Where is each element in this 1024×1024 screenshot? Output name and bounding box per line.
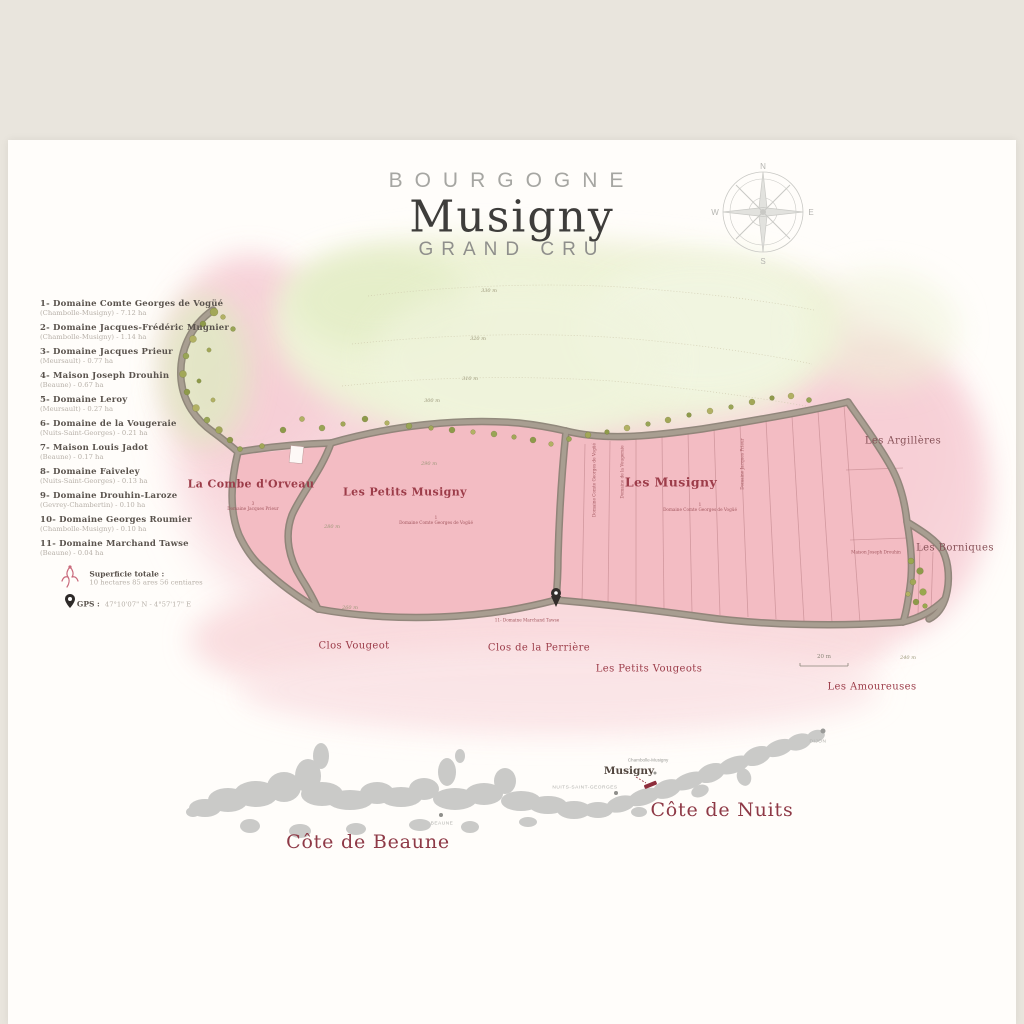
domaine-label: 6- Domaine de la Vougeraie: [40, 419, 240, 429]
label-clos-vougeot: Clos Vougeot: [318, 641, 389, 652]
vine-icon: [59, 564, 81, 590]
domaine-label: 7- Maison Louis Jadot: [40, 443, 240, 453]
domaine-label: 2- Domaine Jacques-Frédéric Mugnier: [40, 323, 240, 333]
region-title: BOURGOGNE: [389, 169, 636, 193]
parcel-owner-label: 1 Domaine Comte Georges de Vogüé: [399, 515, 473, 526]
nuits-dot: [614, 791, 618, 795]
label-les-petits-musigny: Les Petits Musigny: [343, 486, 467, 499]
domaine-legend: 1- Domaine Comte Georges de Vogüé(Chambo…: [40, 299, 240, 563]
domaine-label: 8- Domaine Faiveley: [40, 467, 240, 477]
compass-e: E: [808, 208, 813, 217]
label-dijon: DIJON: [810, 740, 827, 745]
parcel-owner-name: Domaine Jacques Prieur: [227, 506, 278, 511]
parcel-owner-label: 3 Domaine Jacques Prieur: [227, 501, 278, 512]
label-clos-de-la-perriere: Clos de la Perrière: [488, 643, 590, 654]
elevation-label: 260 m: [342, 605, 358, 611]
compass-n: N: [760, 162, 766, 171]
building: [289, 445, 304, 463]
beaune-dot: [439, 813, 443, 817]
legend-item: 11- Domaine Marchand Tawse(Beaune) - 0.0…: [40, 539, 240, 557]
domaine-label: 9- Domaine Drouhin-Laroze: [40, 491, 240, 501]
legend-item: 1- Domaine Comte Georges de Vogüé(Chambo…: [40, 299, 240, 317]
elevation-label: 320 m: [470, 336, 486, 342]
label-chambolle-musigny: Chambolle-Musigny: [628, 758, 669, 763]
parcel-owner-label: Domaine de la Vougeraie: [619, 445, 624, 498]
legend-item: 4- Maison Joseph Drouhin(Beaune) - 0.67 …: [40, 371, 240, 389]
domaine-detail: (Beaune) - 0.67 ha: [40, 381, 240, 389]
legend-item: 7- Maison Louis Jadot(Beaune) - 0.17 ha: [40, 443, 240, 461]
dijon-dot: [821, 729, 826, 734]
domaine-detail: (Beaune) - 0.04 ha: [40, 549, 240, 557]
elevation-label: 280 m: [324, 524, 340, 530]
page-title: Musigny: [409, 192, 614, 243]
domaine-label: 3- Domaine Jacques Prieur: [40, 347, 240, 357]
gps-value: 47°10'07" N - 4°57'17" E: [105, 601, 191, 609]
label-nuits-saint-georges: NUITS-SAINT-GEORGES: [552, 786, 617, 791]
superficie-label: Superficie totale :: [89, 570, 202, 579]
domaine-detail: (Chambolle-Musigny) - 1.14 ha: [40, 333, 240, 341]
label-la-combe-dorveau: La Combe d'Orveau: [188, 478, 315, 491]
label-les-borniques: Les Borniques: [916, 543, 994, 554]
label-beaune: BEAUNE: [431, 822, 454, 827]
parcel-owner-label: Maison Joseph Drouhin: [851, 549, 901, 554]
domaine-detail: (Beaune) - 0.17 ha: [40, 453, 240, 461]
gps-block: GPS : 47°10'07" N - 4°57'17" E: [77, 592, 191, 611]
parcel-owner-label: 11- Domaine Marchand Tawse: [495, 617, 559, 622]
elevation-label: 300 m: [424, 398, 440, 404]
domaine-label: 5- Domaine Leroy: [40, 395, 240, 405]
subtitle: GRAND CRU: [418, 239, 605, 261]
elevation-label: 290 m: [421, 461, 437, 467]
parcel-owner-name: Domaine Comte Georges de Vogüé: [399, 520, 473, 525]
elevation-label: 330 m: [481, 288, 497, 294]
gps-pin-icon: [64, 593, 76, 609]
scale-label: 20 m: [817, 654, 831, 660]
legend-item: 10- Domaine Georges Roumier(Chambolle-Mu…: [40, 515, 240, 533]
label-les-argilleres: Les Argillères: [865, 436, 941, 447]
domaine-label: 11- Domaine Marchand Tawse: [40, 539, 240, 549]
compass-rose-icon: N E S W: [711, 162, 813, 266]
legend-item: 6- Domaine de la Vougeraie(Nuits-Saint-G…: [40, 419, 240, 437]
domaine-label: 10- Domaine Georges Roumier: [40, 515, 240, 525]
parcel-owner-label: 1 Domaine Comte Georges de Vogüé: [663, 502, 737, 513]
legend-item: 2- Domaine Jacques-Frédéric Mugnier(Cham…: [40, 323, 240, 341]
legend-item: 3- Domaine Jacques Prieur(Meursault) - 0…: [40, 347, 240, 365]
domaine-detail: (Meursault) - 0.77 ha: [40, 357, 240, 365]
parcel-owner-label: Domaine Comte Georges de Vogüé: [591, 443, 596, 517]
elevation-label: 310 m: [462, 376, 478, 382]
elevation-label: 240 m: [900, 655, 916, 661]
label-cote-de-nuits: Côte de Nuits: [650, 799, 793, 821]
domaine-detail: (Meursault) - 0.27 ha: [40, 405, 240, 413]
gps-label: GPS :: [77, 600, 100, 609]
legend-item: 9- Domaine Drouhin-Laroze(Gevrey-Chamber…: [40, 491, 240, 509]
label-cote-de-beaune: Côte de Beaune: [286, 831, 450, 853]
superficie-value: 10 hectares 85 ares 56 centiares: [89, 579, 202, 587]
label-musigny-inset: Musigny: [604, 765, 654, 777]
label-les-amoureuses: Les Amoureuses: [828, 682, 917, 693]
label-les-petits-vougeots: Les Petits Vougeots: [596, 664, 702, 675]
domaine-detail: (Chambolle-Musigny) - 0.10 ha: [40, 525, 240, 533]
compass-w: W: [711, 208, 719, 217]
parcel-owner-name: Domaine Comte Georges de Vogüé: [663, 507, 737, 512]
parcel-owner-label: Domaine Jacques Prieur: [739, 438, 744, 489]
legend-item: 5- Domaine Leroy(Meursault) - 0.27 ha: [40, 395, 240, 413]
domaine-detail: (Gevrey-Chambertin) - 0.10 ha: [40, 501, 240, 509]
domaine-detail: (Chambolle-Musigny) - 7.12 ha: [40, 309, 240, 317]
inset-map: [186, 728, 826, 838]
superficie-block: Superficie totale : 10 hectares 85 ares …: [89, 570, 202, 587]
label-les-musigny: Les Musigny: [625, 475, 717, 490]
domaine-label: 1- Domaine Comte Georges de Vogüé: [40, 299, 240, 309]
domaine-detail: (Nuits-Saint-Georges) - 0.21 ha: [40, 429, 240, 437]
domaine-label: 4- Maison Joseph Drouhin: [40, 371, 240, 381]
compass-s: S: [760, 257, 765, 266]
